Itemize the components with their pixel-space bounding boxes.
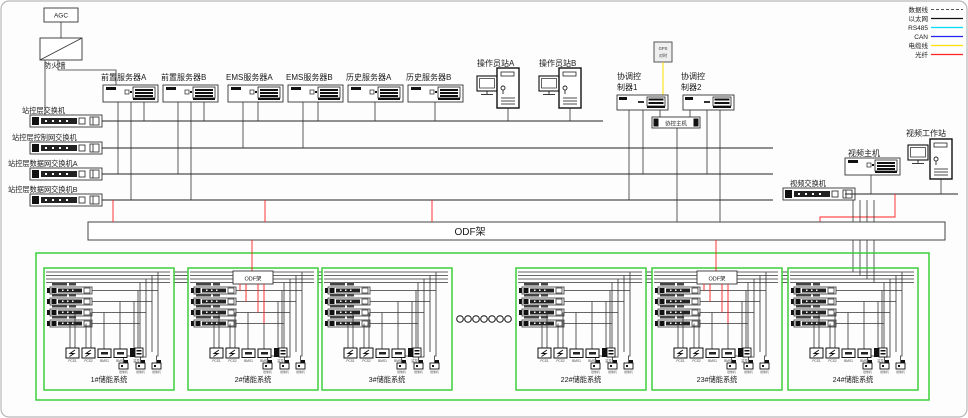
legend-label: CAN bbox=[914, 34, 928, 41]
storage-unit-label: 1#储能系统 bbox=[91, 375, 128, 384]
legend: 数据线 以太网 RS485 CAN 电缆线 光纤 bbox=[908, 5, 963, 59]
switch-label: 站控层交换机 bbox=[22, 106, 66, 115]
switch-icon bbox=[30, 168, 102, 180]
tower-icon bbox=[559, 68, 581, 108]
server-label: 前置服务器A bbox=[101, 72, 147, 82]
server-label: EMS服务器B bbox=[286, 72, 333, 82]
fiber-links-to-odf bbox=[113, 200, 432, 222]
agc-label: AGC bbox=[54, 13, 68, 20]
controller-label: 制器2 bbox=[681, 82, 702, 92]
controller-icon bbox=[617, 95, 668, 110]
main-odf-rack: ODF架 bbox=[88, 200, 945, 240]
timesync-label: 对时 bbox=[659, 52, 668, 58]
storage-unit-label: 22#储能系统 bbox=[561, 375, 602, 384]
server-icon bbox=[228, 85, 283, 102]
tower-icon bbox=[930, 139, 952, 179]
legend-label: 数据线 bbox=[909, 5, 929, 14]
server-icon bbox=[408, 85, 463, 102]
storage-unit-22: 22#储能系统 bbox=[516, 268, 646, 390]
network-topology-diagram: PCS1 PCS2 BMS1 BMS2 监控 摄像机 摄像机 摄像机 ODF架 … bbox=[0, 0, 968, 418]
video-chain: 视频交换机 视频主机 视频工作站 bbox=[783, 128, 958, 283]
ellipsis-dots bbox=[457, 316, 512, 323]
switch-label: 站控层数据网交换机A bbox=[8, 159, 78, 168]
monitor-icon bbox=[477, 76, 497, 95]
storage-unit-3: 3#储能系统 bbox=[322, 268, 452, 390]
controller-icon bbox=[683, 95, 734, 110]
tower-icon bbox=[497, 68, 519, 108]
server-label: 前置服务器B bbox=[161, 72, 206, 82]
operator-label: 操作员站B bbox=[539, 58, 576, 68]
controller-label: 制器1 bbox=[617, 82, 638, 92]
video-host-icon bbox=[845, 158, 900, 175]
storage-unit-24: 24#储能系统 bbox=[788, 268, 918, 390]
controller-label: 协调控 bbox=[617, 71, 641, 81]
controller-label: 协调控 bbox=[681, 71, 705, 81]
server-label: EMS服务器A bbox=[226, 72, 273, 82]
switch-label: 站控层控制网交换机 bbox=[12, 133, 78, 142]
server-icon bbox=[288, 85, 343, 102]
server-row: 前置服务器A 前置服务器B EMS服务器A EMS服务器B 历史服务器A 历史服… bbox=[101, 72, 463, 200]
timesync-label: GPS bbox=[659, 46, 668, 51]
switch-label: 站控层数据网交换机B bbox=[8, 185, 78, 194]
odf-rack-box bbox=[88, 222, 945, 240]
storage-area: 1#储能系统 2#储能系统 3#储能系统 22#储能系统 23#储能系统 24#… bbox=[36, 240, 929, 400]
video-storage-riser bbox=[853, 200, 874, 283]
legend-label: 以太网 bbox=[909, 14, 929, 23]
storage-unit-label: 23#储能系统 bbox=[697, 375, 738, 384]
storage-unit-1: 1#储能系统 bbox=[44, 268, 174, 390]
storage-unit-label: 2#储能系统 bbox=[235, 375, 272, 384]
server-icon bbox=[103, 85, 158, 102]
monitor-icon bbox=[539, 76, 559, 95]
legend-label: 光纤 bbox=[915, 50, 929, 59]
storage-unit-23: 23#储能系统 bbox=[652, 268, 782, 390]
video-workstation-label: 视频工作站 bbox=[906, 128, 946, 138]
server-icon bbox=[348, 85, 403, 102]
server-legs bbox=[118, 102, 435, 200]
diagram-canvas: PCS1 PCS2 BMS1 BMS2 监控 摄像机 摄像机 摄像机 ODF架 … bbox=[0, 0, 968, 418]
odf-rack-label: ODF架 bbox=[454, 226, 485, 238]
video-switch-label: 视频交换机 bbox=[790, 179, 827, 188]
storage-unit-2: 2#储能系统 bbox=[188, 268, 318, 390]
server-label: 历史服务器A bbox=[346, 72, 392, 82]
monitor-icon bbox=[908, 145, 928, 164]
operator-stations: 操作员站A 操作员站B bbox=[477, 58, 581, 121]
switch-icon bbox=[30, 194, 102, 206]
server-icon bbox=[163, 85, 218, 102]
coord-host-label: 协控主机 bbox=[665, 120, 688, 128]
video-switch-icon bbox=[783, 188, 855, 200]
switch-icon bbox=[30, 115, 102, 127]
operator-label: 操作员站A bbox=[477, 58, 515, 68]
storage-unit-label: 24#储能系统 bbox=[833, 375, 874, 384]
bus-lines bbox=[102, 121, 773, 200]
server-label: 历史服务器B bbox=[406, 72, 451, 82]
legend-label: RS485 bbox=[908, 25, 928, 32]
timesync-box bbox=[654, 42, 672, 62]
firewall-label: 防火墙 bbox=[44, 61, 66, 70]
video-host-label: 视频主机 bbox=[848, 148, 880, 158]
storage-unit-label: 3#储能系统 bbox=[369, 375, 406, 384]
legend-label: 电缆线 bbox=[909, 41, 929, 50]
coordination-controllers: GPS 对时 协调控 制器1 协调控 制器2 协控主机 bbox=[617, 42, 734, 222]
switch-icon bbox=[30, 142, 102, 154]
